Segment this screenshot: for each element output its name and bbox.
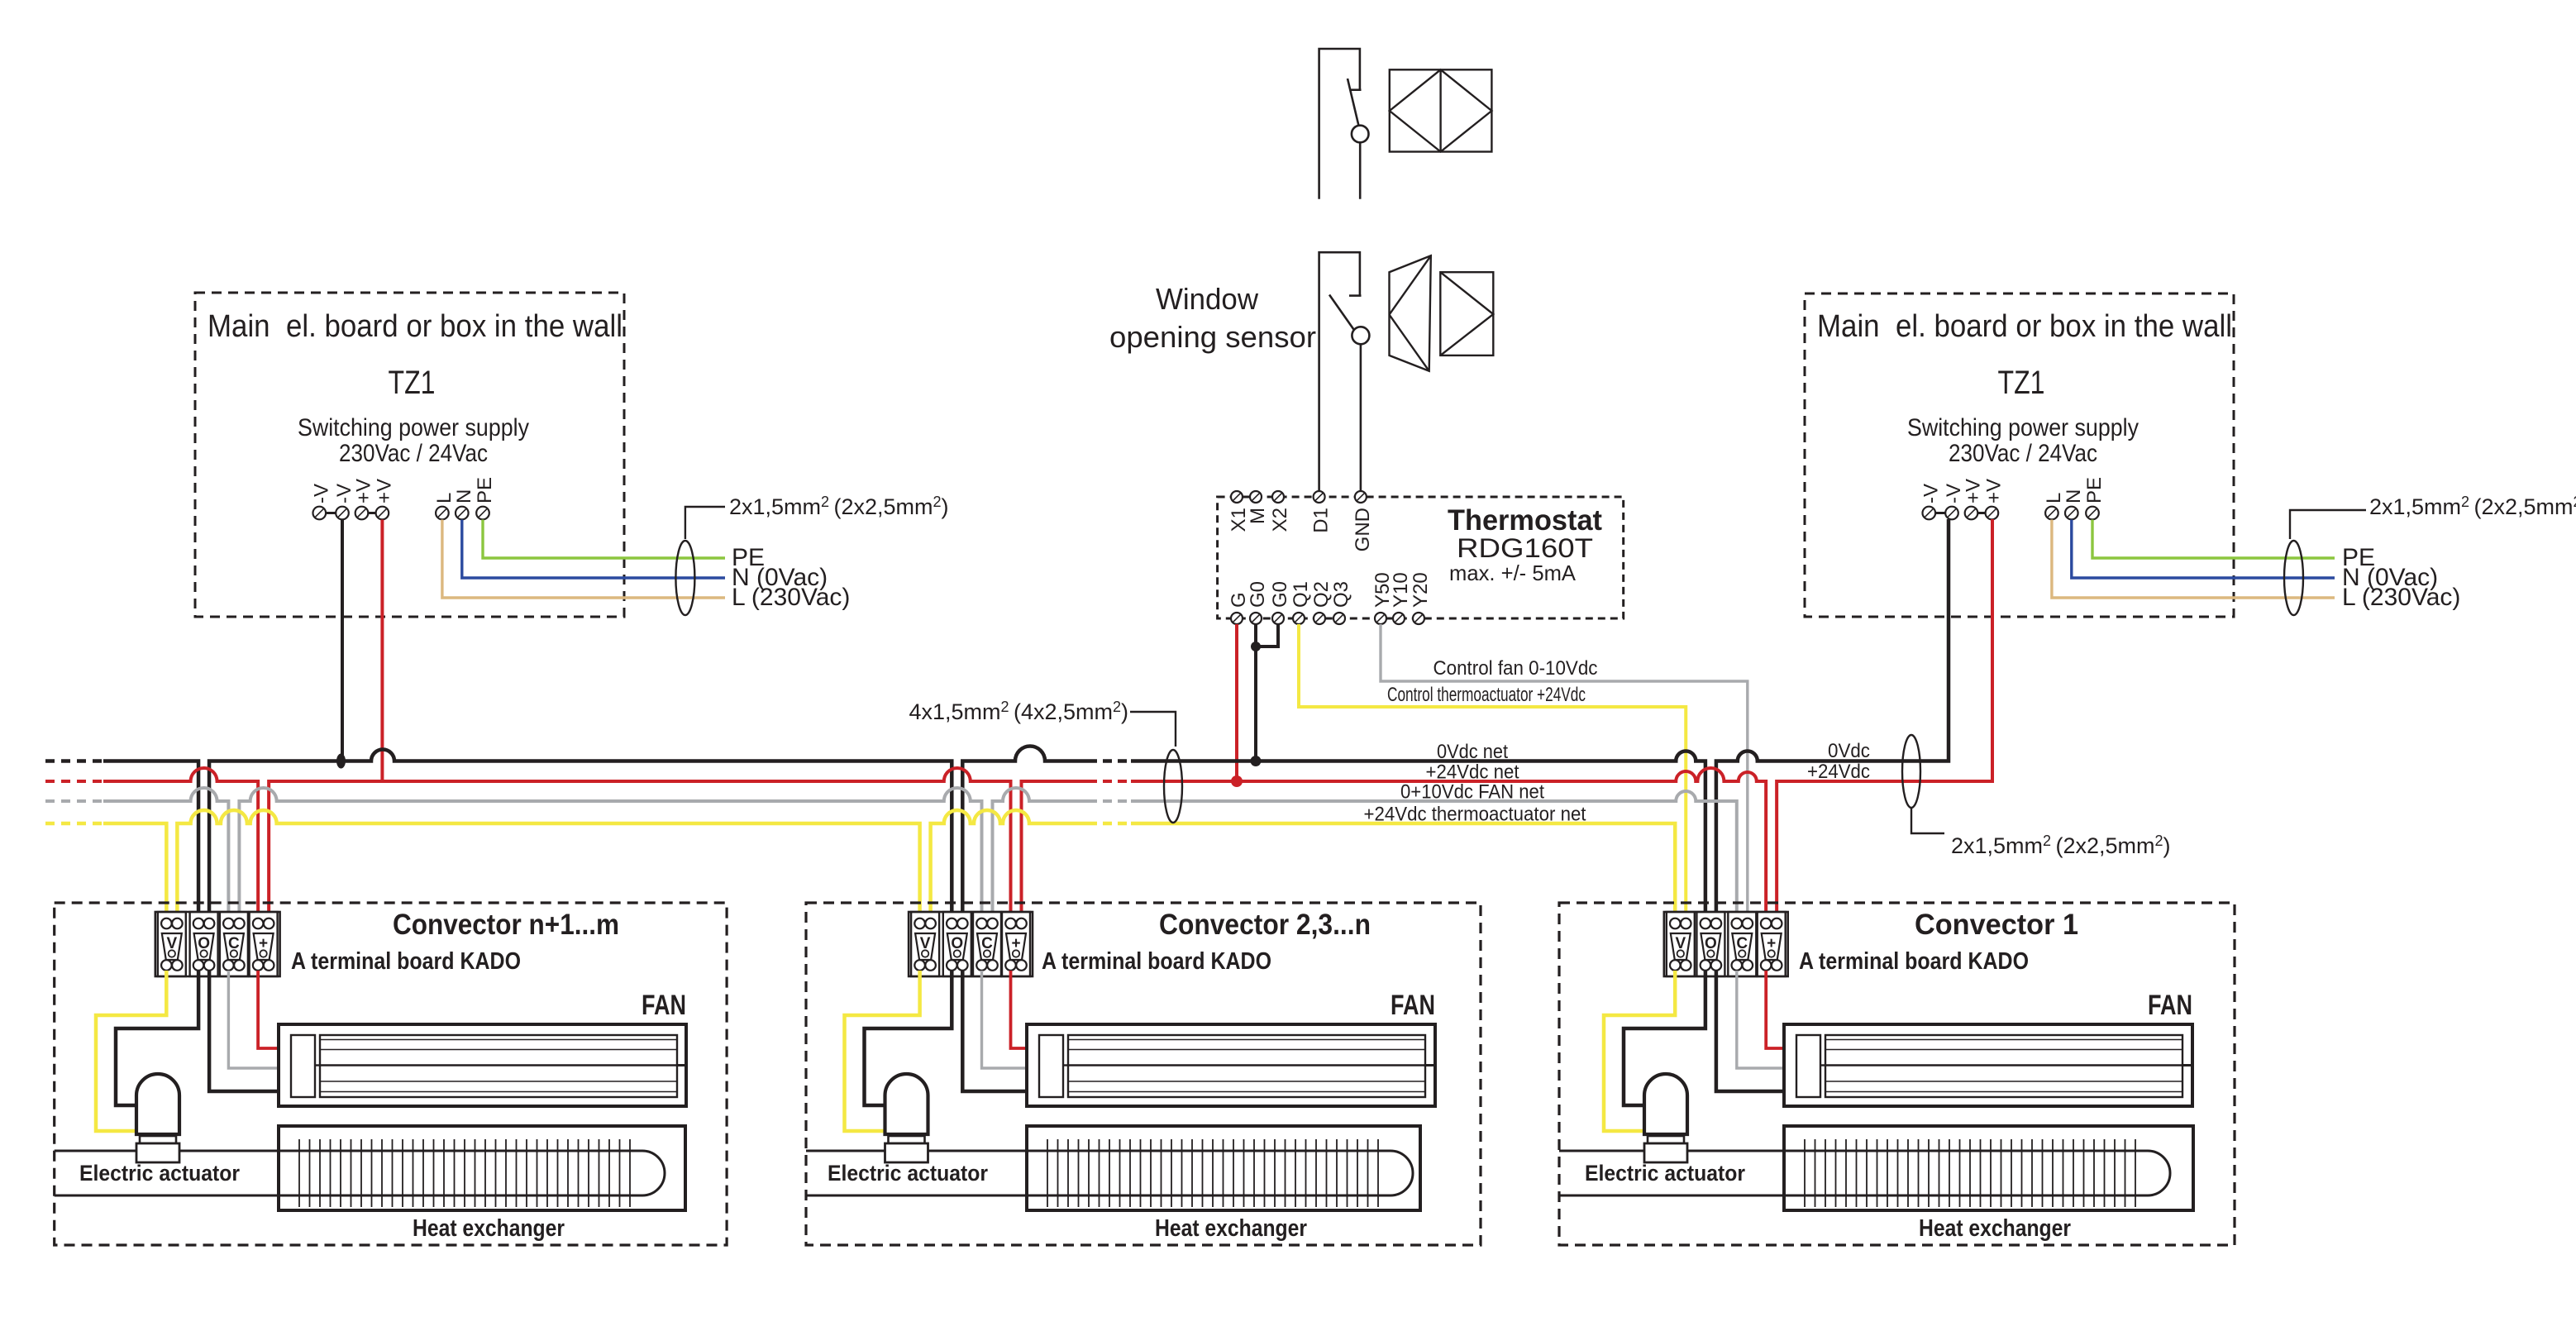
svg-text:Convector n+1...m: Convector n+1...m bbox=[393, 909, 619, 941]
svg-text:+24Vdc: +24Vdc bbox=[1807, 761, 1870, 783]
svg-text:G0: G0 bbox=[1269, 581, 1291, 608]
svg-text:Convector 2,3...n: Convector 2,3...n bbox=[1159, 909, 1371, 941]
svg-text:-V: -V bbox=[1920, 484, 1942, 503]
svg-text:0Vdc: 0Vdc bbox=[1828, 740, 1870, 762]
svg-text:Switching power supply: Switching power supply bbox=[1907, 414, 2139, 441]
svg-text:Main el. board or box in the: Main el. board or box in the wall bbox=[1817, 309, 2232, 344]
svg-text:230Vac / 24Vac: 230Vac / 24Vac bbox=[339, 440, 488, 467]
svg-text:L (230Vac): L (230Vac) bbox=[2342, 584, 2460, 611]
svg-text:Thermostat: Thermostat bbox=[1448, 504, 1602, 537]
svg-text:max. +/- 5mA: max. +/- 5mA bbox=[1449, 561, 1577, 585]
svg-text:A terminal board KADO: A terminal board KADO bbox=[1042, 948, 1271, 975]
svg-text:Electric actuator: Electric actuator bbox=[828, 1161, 988, 1186]
svg-text:M: M bbox=[1247, 508, 1269, 524]
svg-text:opening sensor: opening sensor bbox=[1109, 320, 1316, 354]
svg-text:Convector 1: Convector 1 bbox=[1915, 909, 2078, 941]
svg-text:TZ1: TZ1 bbox=[389, 365, 436, 401]
svg-text:G0: G0 bbox=[1247, 581, 1269, 608]
svg-text:230Vac / 24Vac: 230Vac / 24Vac bbox=[1949, 440, 2097, 467]
svg-text:Electric actuator: Electric actuator bbox=[1585, 1161, 1745, 1186]
svg-text:Switching power supply: Switching power supply bbox=[298, 414, 529, 441]
svg-text:Heat exchanger: Heat exchanger bbox=[1919, 1215, 2071, 1242]
svg-text:Control fan 0-10Vdc: Control fan 0-10Vdc bbox=[1433, 657, 1598, 680]
svg-text:N: N bbox=[2063, 489, 2085, 503]
svg-text:Control thermoactuator +24Vdc: Control thermoactuator +24Vdc bbox=[1387, 684, 1586, 706]
svg-text:Heat exchanger: Heat exchanger bbox=[413, 1215, 565, 1242]
svg-text:2x1,5mm2 (2x2,5mm2): 2x1,5mm2 (2x2,5mm2) bbox=[1951, 833, 2171, 858]
svg-text:4x1,5mm2 (4x2,5mm2): 4x1,5mm2 (4x2,5mm2) bbox=[909, 699, 1128, 724]
svg-text:Main el. board or box in the: Main el. board or box in the wall bbox=[208, 309, 623, 344]
svg-text:X2: X2 bbox=[1269, 508, 1291, 532]
svg-text:A terminal board KADO: A terminal board KADO bbox=[1799, 948, 2029, 975]
svg-text:Q3: Q3 bbox=[1330, 581, 1352, 608]
svg-text:D1: D1 bbox=[1310, 508, 1333, 533]
svg-text:-V: -V bbox=[310, 484, 332, 503]
svg-text:+24Vdc thermoactuator net: +24Vdc thermoactuator net bbox=[1364, 804, 1586, 826]
svg-text:2x1,5mm2 (2x2,5mm2): 2x1,5mm2 (2x2,5mm2) bbox=[729, 494, 949, 519]
svg-text:PE: PE bbox=[474, 477, 496, 503]
svg-text:+V: +V bbox=[353, 479, 375, 503]
svg-text:Q1: Q1 bbox=[1290, 581, 1312, 608]
svg-text:FAN: FAN bbox=[2148, 990, 2192, 1021]
svg-text:Q2: Q2 bbox=[1310, 581, 1333, 608]
svg-text:GND: GND bbox=[1352, 508, 1374, 551]
svg-text:FAN: FAN bbox=[642, 990, 686, 1021]
svg-text:A terminal board KADO: A terminal board KADO bbox=[291, 948, 521, 975]
svg-text:0Vdc net: 0Vdc net bbox=[1437, 741, 1508, 763]
svg-text:RDG160T: RDG160T bbox=[1457, 533, 1593, 563]
svg-text:FAN: FAN bbox=[1391, 990, 1435, 1021]
svg-text:TZ1: TZ1 bbox=[1998, 365, 2045, 401]
svg-text:+V: +V bbox=[1982, 479, 2005, 503]
svg-text:L (230Vac): L (230Vac) bbox=[732, 584, 850, 611]
svg-text:PE: PE bbox=[2083, 477, 2106, 503]
svg-text:Y20: Y20 bbox=[1410, 572, 1432, 608]
svg-text:N: N bbox=[453, 489, 475, 503]
svg-text:Window: Window bbox=[1156, 282, 1259, 316]
svg-text:0+10Vdc FAN net: 0+10Vdc FAN net bbox=[1400, 781, 1544, 804]
svg-text:2x1,5mm2 (2x2,5mm2): 2x1,5mm2 (2x2,5mm2) bbox=[2369, 494, 2576, 519]
svg-text:+V: +V bbox=[1963, 479, 1985, 503]
svg-text:Y10: Y10 bbox=[1390, 572, 1412, 608]
svg-text:+V: +V bbox=[373, 479, 395, 503]
svg-text:+24Vdc net: +24Vdc net bbox=[1426, 761, 1519, 784]
svg-text:Heat exchanger: Heat exchanger bbox=[1155, 1215, 1307, 1242]
svg-text:Electric actuator: Electric actuator bbox=[79, 1161, 240, 1186]
